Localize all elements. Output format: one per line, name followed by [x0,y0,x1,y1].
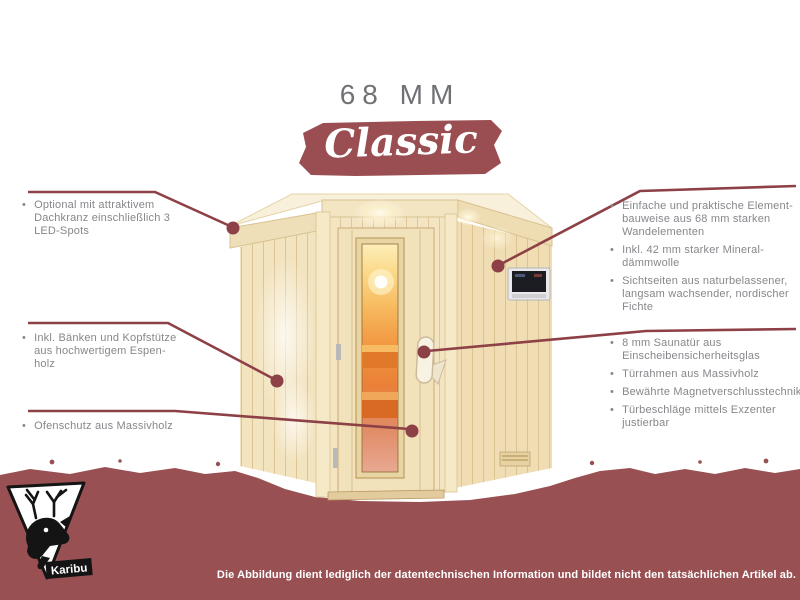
annotation-item: •8 mm Saunatür aus Einscheibensicherheit… [610,337,800,363]
bullet-icon: • [610,404,614,430]
sauna-control-panel [508,268,550,300]
annotation-item: •Türrahmen aus Massivholz [610,368,800,381]
classic-badge: Classic [294,115,507,168]
door-hinge [336,344,341,360]
annotation-dot [418,346,431,359]
bullet-icon: • [610,337,614,363]
annotation-item: •Inkl. 42 mm starker Mineral-dämmwolle [610,244,800,270]
interior-bench [362,345,398,352]
corner-post [445,214,457,492]
bullet-icon: • [22,420,26,433]
annotation-ofenschutz: •Ofenschutz aus Massivholz [22,420,232,438]
corner-post [316,212,330,497]
led-spot-glow [481,226,513,250]
annotation-item: •Inkl. Bänken und Kopfstütze aus hochwer… [22,332,184,371]
annotation-list: •Einfache und praktische Element-bauweis… [610,200,800,314]
annotation-list: •8 mm Saunatür aus Einscheibensicherheit… [610,337,800,430]
bullet-icon: • [22,332,26,371]
interior-lamp [375,276,388,289]
bullet-icon: • [610,368,614,381]
annotation-dachkranz: •Optional mit attraktivem Dachkranz eins… [22,199,172,243]
sauna-illustration [230,194,552,500]
annotation-item: •Optional mit attraktivem Dachkranz eins… [22,199,172,238]
bullet-icon: • [610,200,614,239]
annotation-dot [271,375,284,388]
annotation-list: •Ofenschutz aus Massivholz [22,420,232,433]
led-spot-glow [455,208,481,226]
footer-disclaimer: Die Abbildung dient lediglich der datent… [217,569,796,581]
annotation-item: •Ofenschutz aus Massivholz [22,420,232,433]
bullet-icon: • [22,199,26,238]
annotation-tuer: •8 mm Saunatür aus Einscheibensicherheit… [610,337,800,435]
bullet-icon: • [610,275,614,314]
door-threshold [328,490,444,500]
annotation-item: •Türbeschläge mittels Exzenter justierba… [610,404,800,430]
door-hinge [333,448,338,468]
annotation-item: •Einfache und praktische Element-bauweis… [610,200,800,239]
annotation-list: •Optional mit attraktivem Dachkranz eins… [22,199,172,238]
classic-banner: Classic [295,117,507,179]
led-spot-glow [354,199,406,227]
annotation-dot [406,425,419,438]
interior-bench-step [362,392,398,400]
annotation-list: •Inkl. Bänken und Kopfstütze aus hochwer… [22,332,184,371]
wall-vent [500,452,530,466]
annotation-dot [492,260,505,273]
annotation-dot [227,222,240,235]
page-title: 68 MM [0,79,800,111]
annotation-item: •Bewährte Magnetverschlusstechnik [610,386,800,399]
annotation-baenke: •Inkl. Bänken und Kopfstütze aus hochwer… [22,332,184,376]
bullet-icon: • [610,244,614,270]
bullet-icon: • [610,386,614,399]
annotation-wandelemente: •Einfache und praktische Element-bauweis… [610,200,800,319]
annotation-item: •Sichtseiten aus naturbelassener, langsa… [610,275,800,314]
